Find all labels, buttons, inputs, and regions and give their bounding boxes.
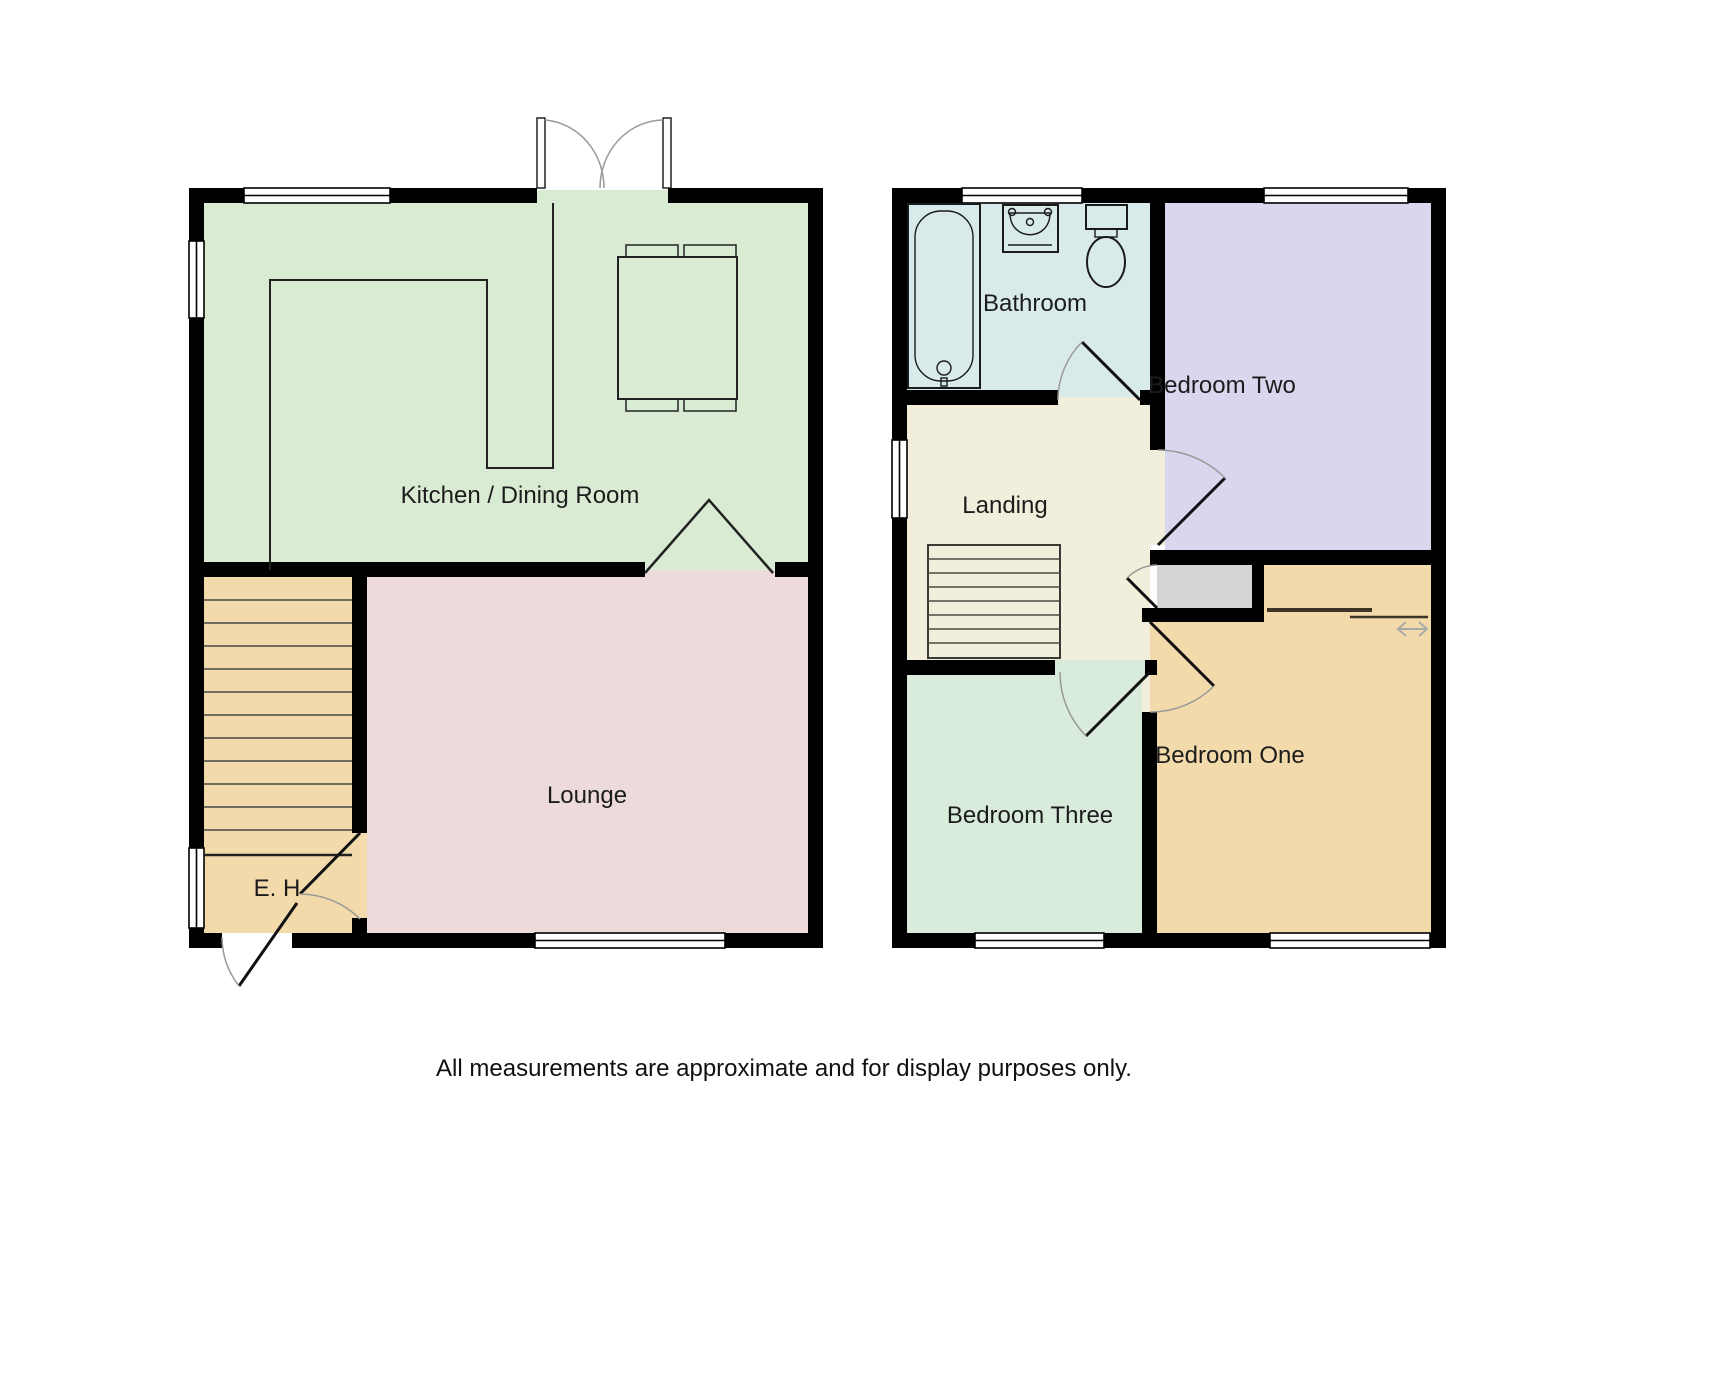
wall-segment xyxy=(892,933,975,948)
bedroom-two-top-window xyxy=(1264,188,1408,203)
wall-segment-bathroom-bed2 xyxy=(1150,188,1165,450)
wall-segment xyxy=(189,318,204,848)
wall-segment-kitchen-lounge xyxy=(189,562,645,577)
bathroom-label: Bathroom xyxy=(983,290,1087,317)
wall-segment xyxy=(725,933,823,948)
bedroom-one-wardrobe-alcove xyxy=(1264,565,1431,622)
bedroom-three-doorway-floor xyxy=(1055,660,1145,675)
landing-left-window xyxy=(892,440,907,518)
wall-segment-bed3 xyxy=(1145,660,1157,675)
wall-segment xyxy=(668,188,823,203)
entrance-hall-label: E. H xyxy=(254,875,301,902)
wall-segment-cupboard xyxy=(1142,608,1264,622)
bathroom-top-window xyxy=(962,188,1082,203)
kitchen-dining-room-floor xyxy=(537,190,668,204)
lounge-bottom-window xyxy=(535,933,725,948)
wall-segment xyxy=(892,518,907,948)
ground-floor-plan: Kitchen / Dining Room Lounge E. H xyxy=(189,118,823,986)
hall-lounge-doorway-floor xyxy=(352,833,367,918)
wall-segment xyxy=(1431,188,1446,948)
landing-label: Landing xyxy=(962,492,1047,519)
bedroom-one-bottom-window xyxy=(1270,933,1430,948)
bathroom-doorway-floor xyxy=(1058,397,1140,405)
wall-segment-bed3 xyxy=(892,660,1055,675)
wall-segment-cupboard xyxy=(1252,565,1264,608)
french-door-right-swing-arc xyxy=(600,120,663,188)
french-door-left-swing-arc xyxy=(545,120,604,188)
bedroom-one-label: Bedroom One xyxy=(1155,742,1304,769)
french-door-left-panel xyxy=(537,118,545,188)
hall-left-window xyxy=(189,848,204,928)
cupboard-floor xyxy=(1157,565,1252,608)
wall-segment xyxy=(390,188,537,203)
kitchen-top-window xyxy=(244,188,390,203)
landing-floor xyxy=(907,405,1150,660)
wall-segment-bed2-bed1 xyxy=(1150,550,1446,565)
wall-segment xyxy=(1082,188,1264,203)
kitchen-left-window xyxy=(189,241,204,318)
floorplan-drawing: Kitchen / Dining Room Lounge E. H xyxy=(0,0,1716,1376)
bedroom-three-bottom-window xyxy=(975,933,1104,948)
wall-segment-stairs-lounge xyxy=(352,562,367,833)
lounge-label: Lounge xyxy=(547,782,627,809)
kitchen-dining-room-label: Kitchen / Dining Room xyxy=(401,482,640,509)
wall-segment xyxy=(1104,933,1270,948)
bathroom-doorway-floor xyxy=(1058,390,1140,397)
floorplan-page: Kitchen / Dining Room Lounge E. H xyxy=(0,0,1716,1376)
french-doors xyxy=(537,118,671,188)
kitchen-dining-room-floor xyxy=(204,203,808,570)
bedroom-three-label: Bedroom Three xyxy=(947,802,1113,829)
wall-segment xyxy=(1430,933,1446,948)
wall-segment-stairs-lounge xyxy=(352,918,367,933)
wall-segment-bathroom xyxy=(892,390,1058,405)
disclaimer-text: All measurements are approximate and for… xyxy=(436,1055,1132,1082)
bedroom-two-label: Bedroom Two xyxy=(1148,372,1296,399)
lounge-floor xyxy=(352,570,808,933)
bedroom-two-doorway-floor xyxy=(1150,450,1165,545)
wall-segment xyxy=(189,188,204,241)
wall-segment xyxy=(292,933,535,948)
wall-segment xyxy=(189,933,222,948)
french-door-right-panel xyxy=(663,118,671,188)
wall-segment-kitchen-lounge xyxy=(775,562,823,577)
first-floor-plan: Bathroom Landing Bedroom Two Bedroom One… xyxy=(892,188,1446,948)
